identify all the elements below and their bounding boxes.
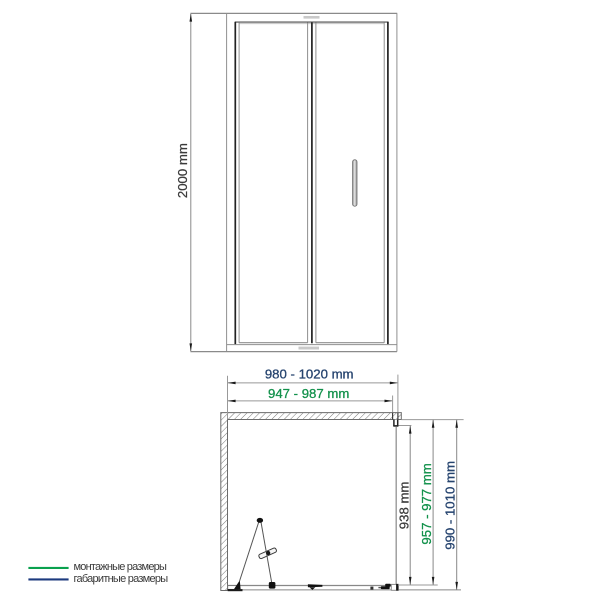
svg-text:957 - 977 mm: 957 - 977 mm — [419, 463, 434, 544]
svg-text:габаритные размеры: габаритные размеры — [74, 573, 169, 585]
svg-text:947 - 987 mm: 947 - 987 mm — [268, 386, 349, 401]
svg-text:монтажные размеры: монтажные размеры — [74, 561, 167, 573]
svg-text:2000 mm: 2000 mm — [175, 143, 190, 198]
svg-text:938 mm: 938 mm — [397, 482, 412, 530]
svg-text:990 - 1010 mm: 990 - 1010 mm — [443, 461, 458, 550]
svg-text:980 - 1020 mm: 980 - 1020 mm — [265, 367, 354, 382]
